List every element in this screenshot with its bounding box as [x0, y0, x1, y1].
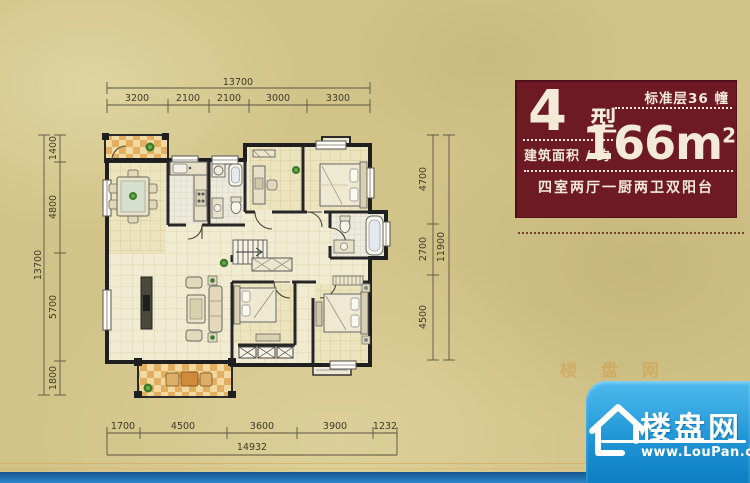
dim-label: 2100 — [217, 93, 241, 104]
dim-top: 13700 3200 2100 2100 3000 3300 — [107, 77, 370, 113]
plant-icon — [144, 384, 153, 393]
house-logo-icon — [588, 397, 646, 457]
dotted-separator — [518, 232, 744, 234]
dim-label: 13700 — [223, 77, 253, 88]
dim-label: 3900 — [323, 421, 347, 432]
dim-label: 11900 — [436, 232, 447, 262]
logo-baseline — [601, 440, 746, 443]
brand-url: www.LouPan.com — [641, 445, 750, 460]
dim-label: 2700 — [418, 237, 429, 261]
dim-label: 1800 — [48, 366, 59, 390]
dim-label: 4700 — [418, 167, 429, 191]
hall-plant — [220, 259, 228, 267]
floorplan-page: 13700 3200 2100 2100 3000 3300 13700 140… — [0, 0, 750, 483]
bed-top-right — [320, 162, 367, 208]
dim-left: 13700 1400 4800 5700 1800 — [33, 135, 66, 395]
bay-windows — [239, 347, 293, 358]
faint-watermark: 楼盘网 — [560, 356, 683, 381]
dim-label: 3600 — [250, 421, 274, 432]
floors-label: 标准层36 幢 — [645, 87, 730, 107]
dim-label: 4800 — [48, 195, 59, 219]
dim-label: 3000 — [266, 93, 290, 104]
dim-bottom: 1700 4500 3600 3900 1232 14932 — [107, 421, 397, 455]
dim-label: 14932 — [237, 442, 267, 453]
area-exponent: 2 — [722, 124, 736, 148]
dotted-divider — [524, 170, 733, 172]
dotted-divider — [615, 107, 732, 109]
dim-label: 3200 — [125, 93, 149, 104]
dim-label: 4500 — [171, 421, 195, 432]
dim-label: 5700 — [48, 295, 59, 319]
balcony-bench — [166, 372, 212, 386]
dim-label: 1232 — [373, 421, 397, 432]
dim-label: 3300 — [326, 93, 350, 104]
dim-right: 4700 2700 4500 11900 — [418, 135, 455, 360]
layout-description: 四室两厅一厨两卫双阳台 — [515, 177, 737, 197]
area-value: 166m2 — [582, 120, 736, 166]
loupan-badge: 楼盘网 www.LouPan.com — [586, 381, 750, 483]
plant-icon — [146, 143, 155, 152]
info-panel: 标准层36 幢 4 型 建筑面积 / 约 166m2 四室两厅一厨两卫双阳台 — [515, 80, 737, 218]
dim-label: 1400 — [48, 136, 59, 160]
area-number: 166m — [582, 116, 722, 170]
dim-label: 1700 — [111, 421, 135, 432]
dim-label: 4500 — [418, 305, 429, 329]
unit-type-number: 4 — [528, 84, 567, 140]
dim-label: 13700 — [33, 250, 44, 280]
dim-label: 2100 — [176, 93, 200, 104]
